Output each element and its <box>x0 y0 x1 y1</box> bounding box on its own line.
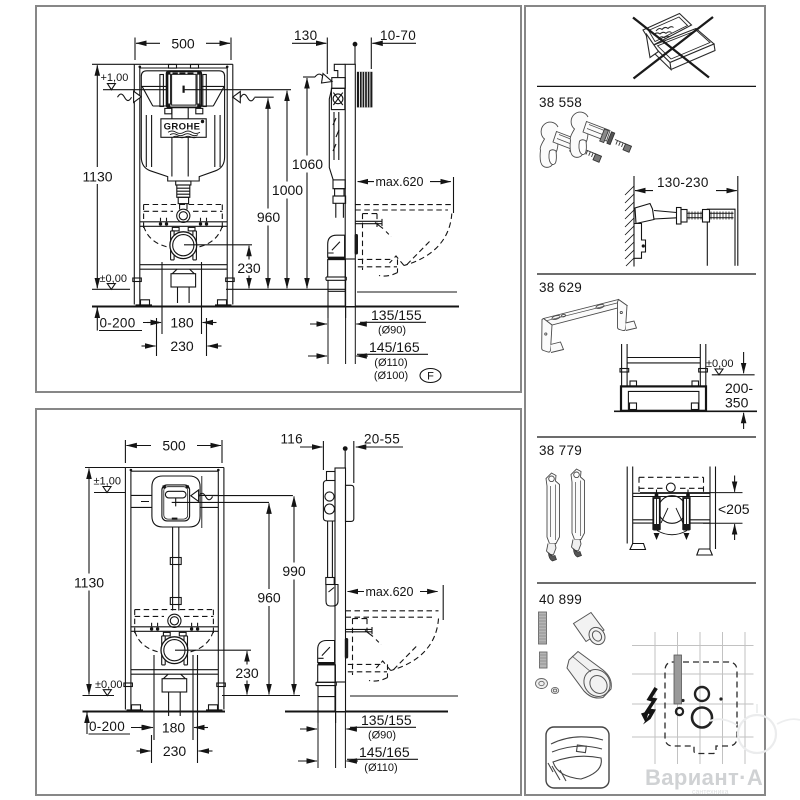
svg-text:10-70: 10-70 <box>380 28 416 43</box>
svg-text:+1,00: +1,00 <box>101 72 129 84</box>
svg-text:40 899: 40 899 <box>539 592 582 607</box>
svg-text:0-200: 0-200 <box>100 315 136 330</box>
svg-text:130: 130 <box>294 28 317 43</box>
svg-text:990: 990 <box>282 563 306 579</box>
svg-text:0-200: 0-200 <box>89 719 125 734</box>
svg-text:1130: 1130 <box>82 168 112 184</box>
svg-text:230: 230 <box>237 260 261 276</box>
svg-text:GROHE: GROHE <box>164 122 201 133</box>
svg-text:сантехника: сантехника <box>692 789 729 796</box>
svg-text:max.620: max.620 <box>376 175 424 189</box>
svg-text:230: 230 <box>170 338 194 354</box>
svg-text:145/165: 145/165 <box>359 744 410 760</box>
svg-text:(Ø110): (Ø110) <box>364 762 397 774</box>
svg-text:230: 230 <box>235 665 259 681</box>
svg-text:±0,00: ±0,00 <box>706 358 733 370</box>
svg-text:145/165: 145/165 <box>369 339 420 355</box>
svg-text:(Ø90): (Ø90) <box>378 325 406 337</box>
svg-text:500: 500 <box>162 438 186 454</box>
svg-text:38 629: 38 629 <box>539 280 582 295</box>
svg-text:960: 960 <box>257 209 281 225</box>
svg-text:1000: 1000 <box>272 182 303 198</box>
svg-text:<205: <205 <box>718 501 750 517</box>
svg-text:±0,00: ±0,00 <box>95 679 122 691</box>
svg-text:38 558: 38 558 <box>539 95 582 110</box>
svg-text:350: 350 <box>725 395 749 411</box>
svg-text:1060: 1060 <box>292 156 323 172</box>
svg-text:F: F <box>427 371 434 383</box>
svg-text:max.620: max.620 <box>366 585 414 599</box>
svg-text:±1,00: ±1,00 <box>94 476 121 488</box>
svg-text:180: 180 <box>170 314 194 330</box>
svg-text:135/155: 135/155 <box>371 307 422 323</box>
svg-text:135/155: 135/155 <box>361 712 412 728</box>
svg-text:500: 500 <box>171 35 195 51</box>
svg-text:180: 180 <box>162 719 186 735</box>
svg-text:130-230: 130-230 <box>657 175 709 190</box>
svg-text:Вариант·А: Вариант·А <box>645 765 763 790</box>
svg-text:(Ø90): (Ø90) <box>368 730 396 742</box>
svg-text:(Ø110): (Ø110) <box>374 357 407 369</box>
svg-text:960: 960 <box>257 589 281 605</box>
svg-text:1130: 1130 <box>74 574 104 590</box>
svg-text:230: 230 <box>163 743 187 759</box>
svg-text:116: 116 <box>281 431 303 446</box>
svg-text:38 779: 38 779 <box>539 443 582 458</box>
svg-text:20-55: 20-55 <box>364 431 400 446</box>
svg-text:(Ø100): (Ø100) <box>374 370 408 382</box>
